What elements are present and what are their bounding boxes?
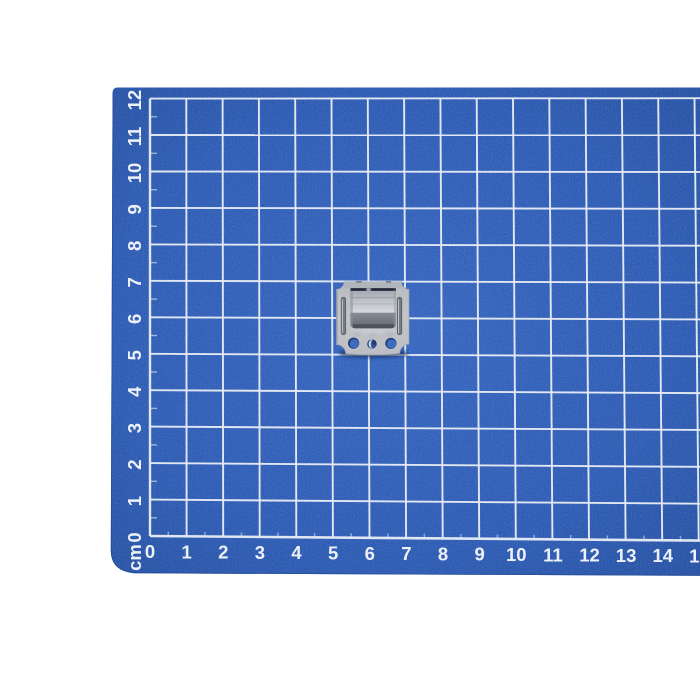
svg-text:7: 7 xyxy=(401,543,411,564)
svg-text:2: 2 xyxy=(218,542,228,563)
svg-text:6: 6 xyxy=(365,543,375,564)
svg-text:8: 8 xyxy=(124,241,145,251)
svg-text:4: 4 xyxy=(291,542,302,563)
svg-text:12: 12 xyxy=(124,90,145,111)
svg-text:0: 0 xyxy=(145,541,155,562)
svg-text:14: 14 xyxy=(653,545,674,566)
svg-text:1: 1 xyxy=(181,541,191,562)
svg-text:8: 8 xyxy=(438,543,448,564)
svg-text:13: 13 xyxy=(616,545,637,566)
svg-text:cm: cm xyxy=(124,544,145,571)
svg-text:3: 3 xyxy=(255,542,265,563)
svg-text:12: 12 xyxy=(579,545,600,566)
svg-text:5: 5 xyxy=(328,543,338,564)
svg-text:6: 6 xyxy=(124,314,145,324)
svg-text:3: 3 xyxy=(124,423,145,433)
svg-text:15: 15 xyxy=(689,546,700,567)
svg-text:5: 5 xyxy=(124,350,145,360)
svg-text:0: 0 xyxy=(124,532,145,542)
svg-text:11: 11 xyxy=(543,544,563,565)
svg-text:10: 10 xyxy=(506,544,527,565)
svg-text:1: 1 xyxy=(124,496,145,506)
svg-text:11: 11 xyxy=(124,127,145,147)
svg-text:4: 4 xyxy=(124,386,145,397)
svg-text:2: 2 xyxy=(124,459,145,469)
svg-text:9: 9 xyxy=(124,204,145,214)
svg-text:10: 10 xyxy=(124,163,145,184)
svg-text:7: 7 xyxy=(124,277,145,287)
svg-text:9: 9 xyxy=(474,544,484,565)
